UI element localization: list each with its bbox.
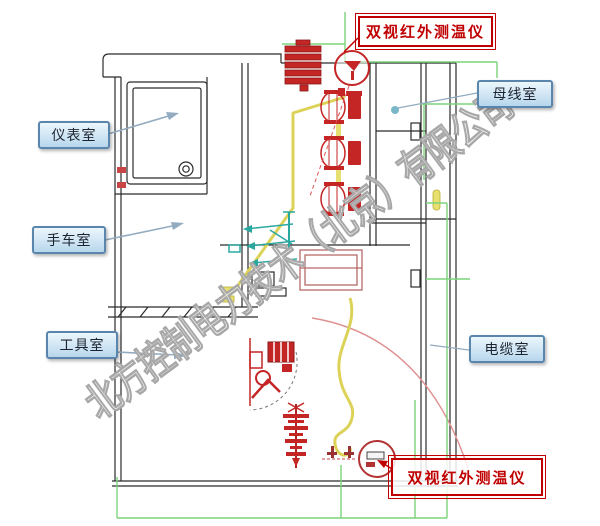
callout-handcart-room: 手车室 xyxy=(32,226,106,254)
sensor-leader-top xyxy=(344,38,358,52)
busbar-contact-icon xyxy=(321,90,361,124)
cabinet-drawing: 北方控制电力技术（北京）有限公司 xyxy=(0,0,600,526)
callout-instrument-room-label: 仪表室 xyxy=(52,125,97,145)
switchgear-section-diagram: 北方控制电力技术（北京）有限公司 仪表室 手车室 工具室 母线室 电缆室 双视红… xyxy=(0,0,600,526)
callout-tool-room-label: 工具室 xyxy=(60,335,105,355)
sensor-label-top-text: 双视红外测温仪 xyxy=(366,21,485,42)
sensor-label-bottom: 双视红外测温仪 xyxy=(391,458,543,496)
pressure-bushing-icon xyxy=(285,40,321,91)
callout-cable-room-label: 电缆室 xyxy=(485,339,530,359)
cable-clamp-icons xyxy=(327,446,354,458)
callout-cable-room: 电缆室 xyxy=(469,335,545,363)
sensor-label-bottom-text: 双视红外测温仪 xyxy=(407,467,526,488)
busbar-contact-icon xyxy=(321,136,361,170)
ir-camera-bottom-icon xyxy=(359,441,395,477)
callout-busbar-room-label: 母线室 xyxy=(493,84,538,104)
door-knob-icon xyxy=(179,162,193,176)
instrument-door xyxy=(127,82,207,184)
callout-busbar-room: 母线室 xyxy=(477,80,553,108)
sensor-label-top: 双视红外测温仪 xyxy=(358,16,493,47)
callout-tool-room: 工具室 xyxy=(46,331,118,359)
ir-camera-top-icon xyxy=(335,51,369,96)
callout-handcart-room-label: 手车室 xyxy=(47,230,92,250)
breaker-mechanism-icon xyxy=(250,338,294,406)
surge-arrester-icon xyxy=(283,403,309,468)
callout-instrument-room: 仪表室 xyxy=(38,121,110,149)
fitting-dot xyxy=(391,106,399,114)
